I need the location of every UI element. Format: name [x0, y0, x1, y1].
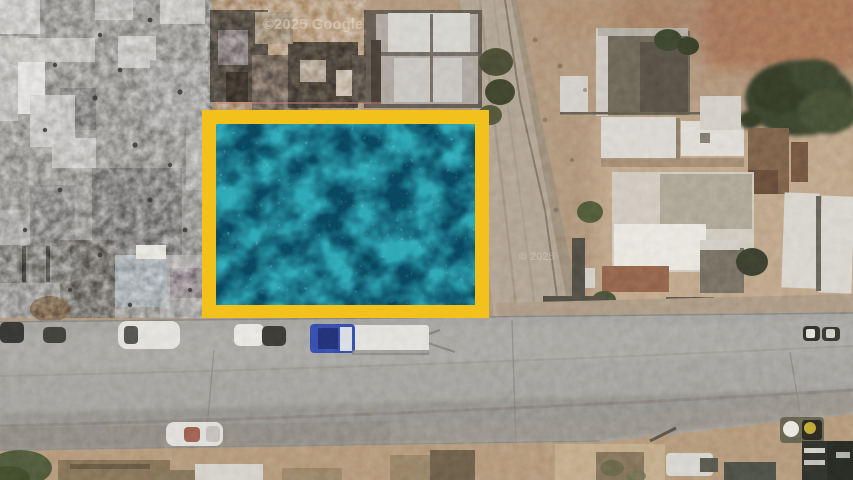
svg-text:© 2025: © 2025 [519, 251, 555, 263]
svg-text:©2025 Google: ©2025 Google [263, 16, 363, 33]
